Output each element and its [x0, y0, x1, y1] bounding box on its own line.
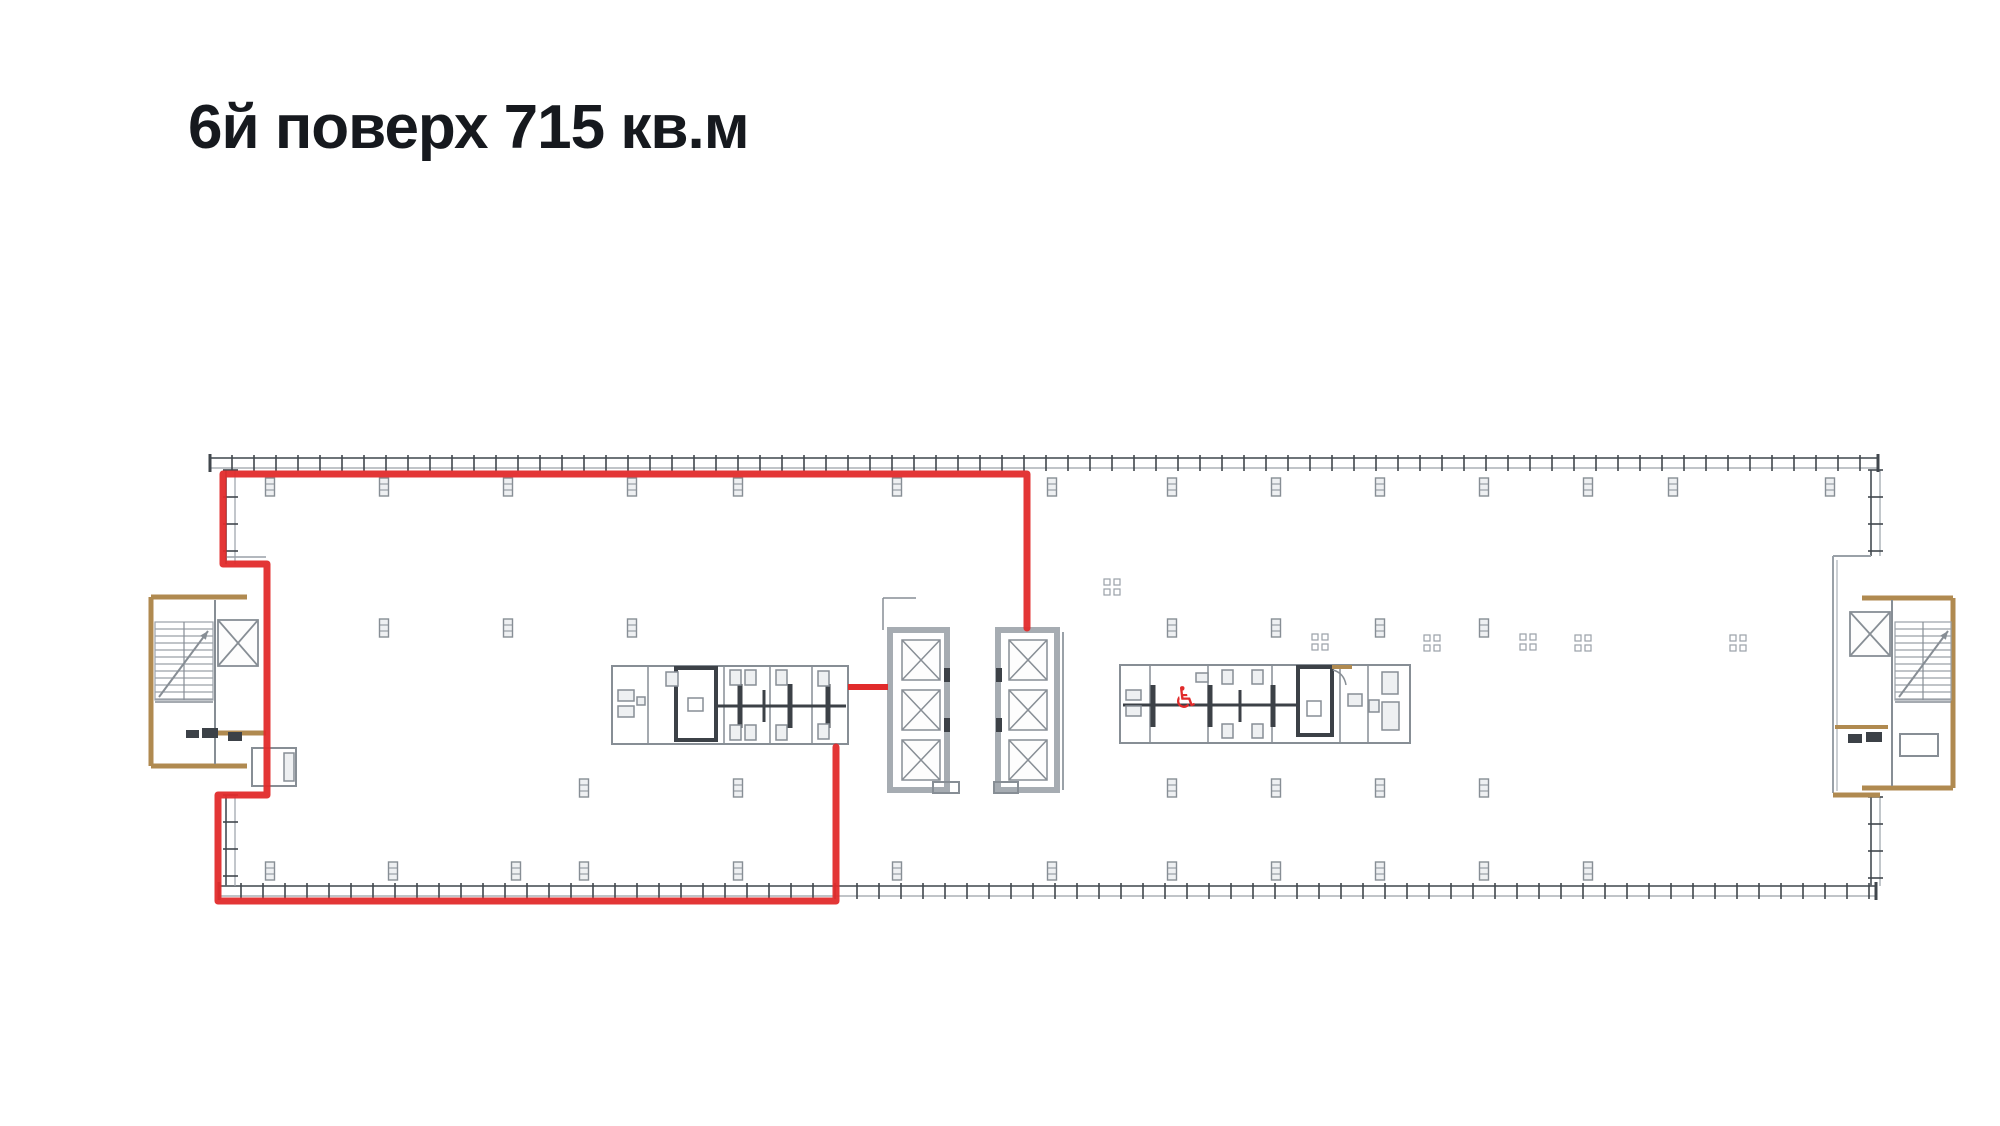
floor-plan: ♿ [0, 0, 2000, 1126]
wc-block-left [612, 666, 848, 744]
page: { "title": "6й поверх 715 кв.м", "legend… [0, 0, 2000, 1126]
right-stair-core [1835, 598, 1953, 788]
left-stair-core [151, 597, 296, 786]
red-outline [218, 474, 1027, 901]
svg-text:♿: ♿ [1173, 681, 1200, 716]
column-grid [266, 478, 1835, 880]
elevator-banks [883, 598, 1063, 793]
floor-plan-drawing: ♿ [0, 0, 2000, 1126]
wc-block-right: ♿ [1120, 665, 1410, 743]
